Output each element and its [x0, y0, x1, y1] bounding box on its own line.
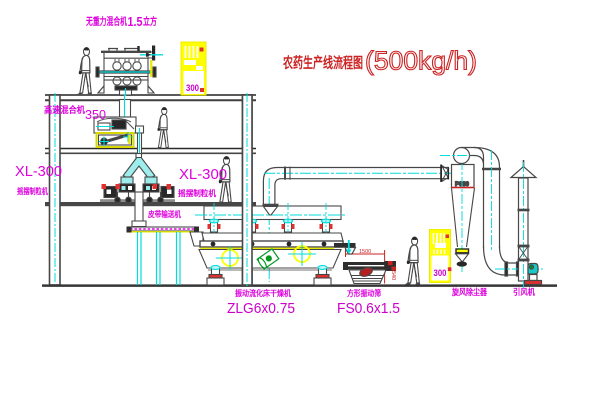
svg-text:1.5: 1.5 — [128, 14, 143, 29]
svg-text:XL-300: XL-300 — [15, 163, 62, 180]
svg-text:300: 300 — [186, 83, 199, 94]
svg-text:农药生产线流程图: 农药生产线流程图 — [282, 54, 363, 72]
svg-text:FS0.6x1.5: FS0.6x1.5 — [337, 300, 400, 317]
svg-text:立方: 立方 — [143, 15, 157, 28]
svg-text:ZLG6x0.75: ZLG6x0.75 — [227, 300, 295, 317]
svg-text:无重力混合机: 无重力混合机 — [85, 15, 127, 28]
svg-text:皮带输送机: 皮带输送机 — [147, 209, 181, 219]
svg-text:方形振动筛: 方形振动筛 — [347, 288, 381, 298]
svg-text:摇摆制粒机: 摇摆制粒机 — [17, 186, 48, 196]
svg-text:350: 350 — [85, 107, 106, 122]
svg-text:540: 540 — [390, 271, 396, 280]
svg-text:(500kg/h): (500kg/h) — [365, 46, 477, 76]
svg-text:振动流化床干燥机: 振动流化床干燥机 — [235, 288, 291, 298]
svg-text:高速混合机: 高速混合机 — [44, 104, 85, 115]
svg-text:摇摆制粒机: 摇摆制粒机 — [178, 188, 216, 198]
svg-text:旋风除尘器: 旋风除尘器 — [451, 287, 487, 297]
svg-text:1500: 1500 — [359, 249, 371, 255]
svg-text:引风机: 引风机 — [513, 287, 535, 297]
svg-text:XL-300: XL-300 — [179, 166, 227, 183]
svg-text:300: 300 — [434, 268, 447, 279]
